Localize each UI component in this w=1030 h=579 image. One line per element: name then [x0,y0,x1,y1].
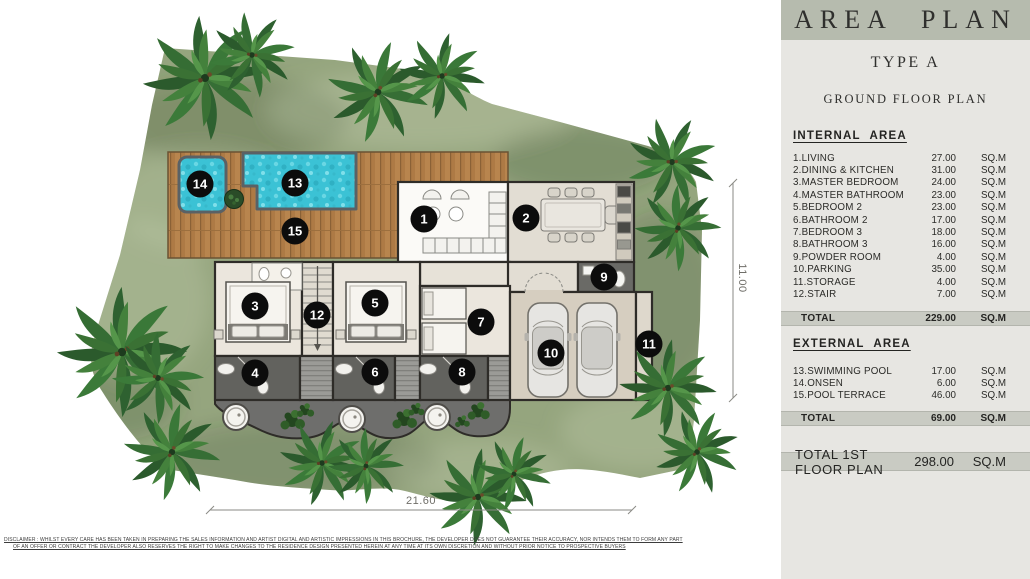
disclaimer-line1: DISCLAIMER : WHILST EVERY CARE HAS BEEN … [4,537,604,544]
type-label: TYPE A [781,54,1030,72]
room-marker-3: 3 [242,293,269,320]
area-plan-page: 123456789101112131415 21.60 11.00 DISCLA… [0,0,1030,579]
area-row-lbl: 12.STAIR [793,289,904,300]
area-row-unit: SQ.M [956,252,1006,263]
external-total-unit: SQ.M [956,413,1006,424]
area-row-lbl: 5.BEDROOM 2 [793,202,904,213]
area-row-val: 23.00 [904,202,956,213]
area-row: 13.SWIMMING POOL17.00SQ.M [793,365,1006,377]
area-row-lbl: 15.POOL TERRACE [793,390,904,401]
area-row-val: 24.00 [904,177,956,188]
area-row-val: 4.00 [904,252,956,263]
external-total-row: TOTAL 69.00 SQ.M [781,411,1030,426]
area-row-unit: SQ.M [956,177,1006,188]
room-marker-5: 5 [362,290,389,317]
area-row-val: 35.00 [904,264,956,275]
room-marker-1: 1 [411,206,438,233]
area-row-val: 23.00 [904,190,956,201]
area-row-unit: SQ.M [956,190,1006,201]
room-marker-8: 8 [449,359,476,386]
area-row-unit: SQ.M [956,264,1006,275]
disclaimer: DISCLAIMER : WHILST EVERY CARE HAS BEEN … [4,537,604,551]
area-row-unit: SQ.M [956,215,1006,226]
area-row: 10.PARKING35.00SQ.M [793,264,1006,276]
room-marker-7: 7 [468,309,495,336]
internal-area-heading: INTERNAL AREA [793,130,907,142]
plan-name-label: GROUND FLOOR PLAN [781,92,1030,107]
internal-total-label: TOTAL [801,313,904,324]
room-marker-11: 11 [636,331,663,358]
area-row-val: 17.00 [904,366,956,377]
area-row-lbl: 4.MASTER BATHROOM [793,190,904,201]
panel-title-band: AREA PLAN [781,0,1030,40]
area-row-val: 31.00 [904,165,956,176]
area-row-lbl: 7.BEDROOM 3 [793,227,904,238]
room-marker-4: 4 [242,360,269,387]
room-marker-10: 10 [538,340,565,367]
grand-total-row: TOTAL 1ST FLOOR PLAN 298.00 SQ.M [781,452,1030,471]
area-row-unit: SQ.M [956,202,1006,213]
site-plan: 123456789101112131415 21.60 11.00 DISCLA… [0,0,780,579]
room-marker-2: 2 [513,205,540,232]
area-row-unit: SQ.M [956,239,1006,250]
area-row-lbl: 3.MASTER BEDROOM [793,177,904,188]
area-row: 4.MASTER BATHROOM23.00SQ.M [793,189,1006,201]
legend-panel: AREA PLAN TYPE A GROUND FLOOR PLAN INTER… [781,0,1030,579]
area-row-val: 7.00 [904,289,956,300]
area-row-lbl: 11.STORAGE [793,277,904,288]
area-row-lbl: 6.BATHROOM 2 [793,215,904,226]
height-dimension-label: 11.00 [736,256,748,300]
room-marker-15: 15 [282,218,309,245]
area-row: 7.BEDROOM 318.00SQ.M [793,226,1006,238]
internal-total-row: TOTAL 229.00 SQ.M [781,311,1030,326]
area-row: 3.MASTER BEDROOM24.00SQ.M [793,177,1006,189]
area-row-unit: SQ.M [956,165,1006,176]
area-row-lbl: 2.DINING & KITCHEN [793,165,904,176]
internal-total-value: 229.00 [904,313,956,324]
area-row: 15.POOL TERRACE46.00SQ.M [793,390,1006,402]
grand-total-value: 298.00 [894,454,954,469]
area-row-val: 6.00 [904,378,956,389]
area-row: 11.STORAGE4.00SQ.M [793,276,1006,288]
area-row-lbl: 13.SWIMMING POOL [793,366,904,377]
room-marker-9: 9 [591,264,618,291]
area-row-lbl: 8.BATHROOM 3 [793,239,904,250]
area-row-unit: SQ.M [956,366,1006,377]
disclaimer-line2: OF AN OFFER OR CONTRACT THE DEVELOPER AL… [4,544,604,551]
room-marker-13: 13 [282,170,309,197]
page-title: AREA PLAN [794,5,1017,35]
area-row: 9.POWDER ROOM4.00SQ.M [793,251,1006,263]
area-row: 2.DINING & KITCHEN31.00SQ.M [793,164,1006,176]
external-area-heading: EXTERNAL AREA [793,338,911,350]
area-row-unit: SQ.M [956,390,1006,401]
markers-layer: 123456789101112131415 [0,0,780,579]
area-row-val: 16.00 [904,239,956,250]
area-row-unit: SQ.M [956,378,1006,389]
room-marker-12: 12 [304,302,331,329]
width-dimension-label: 21.60 [399,495,443,507]
external-total-value: 69.00 [904,413,956,424]
room-marker-14: 14 [187,171,214,198]
area-row-val: 17.00 [904,215,956,226]
grand-total-label: TOTAL 1ST FLOOR PLAN [795,447,894,477]
area-row: 14.ONSEN6.00SQ.M [793,377,1006,389]
area-row: 8.BATHROOM 316.00SQ.M [793,239,1006,251]
area-row-val: 27.00 [904,153,956,164]
area-row-unit: SQ.M [956,277,1006,288]
external-area-list: 13.SWIMMING POOL17.00SQ.M14.ONSEN6.00SQ.… [793,365,1006,402]
area-row-val: 46.00 [904,390,956,401]
internal-total-unit: SQ.M [956,313,1006,324]
area-row: 12.STAIR7.00SQ.M [793,288,1006,300]
area-row: 1.LIVING27.00SQ.M [793,152,1006,164]
area-row-val: 18.00 [904,227,956,238]
area-row-val: 4.00 [904,277,956,288]
area-row-lbl: 9.POWDER ROOM [793,252,904,263]
area-row-unit: SQ.M [956,289,1006,300]
external-total-label: TOTAL [801,413,904,424]
area-row-unit: SQ.M [956,227,1006,238]
room-marker-6: 6 [362,359,389,386]
area-row-lbl: 1.LIVING [793,153,904,164]
area-row-lbl: 14.ONSEN [793,378,904,389]
area-row: 5.BEDROOM 223.00SQ.M [793,202,1006,214]
area-row: 6.BATHROOM 217.00SQ.M [793,214,1006,226]
area-row-lbl: 10.PARKING [793,264,904,275]
internal-area-list: 1.LIVING27.00SQ.M2.DINING & KITCHEN31.00… [793,152,1006,301]
grand-total-unit: SQ.M [954,454,1006,469]
area-row-unit: SQ.M [956,153,1006,164]
